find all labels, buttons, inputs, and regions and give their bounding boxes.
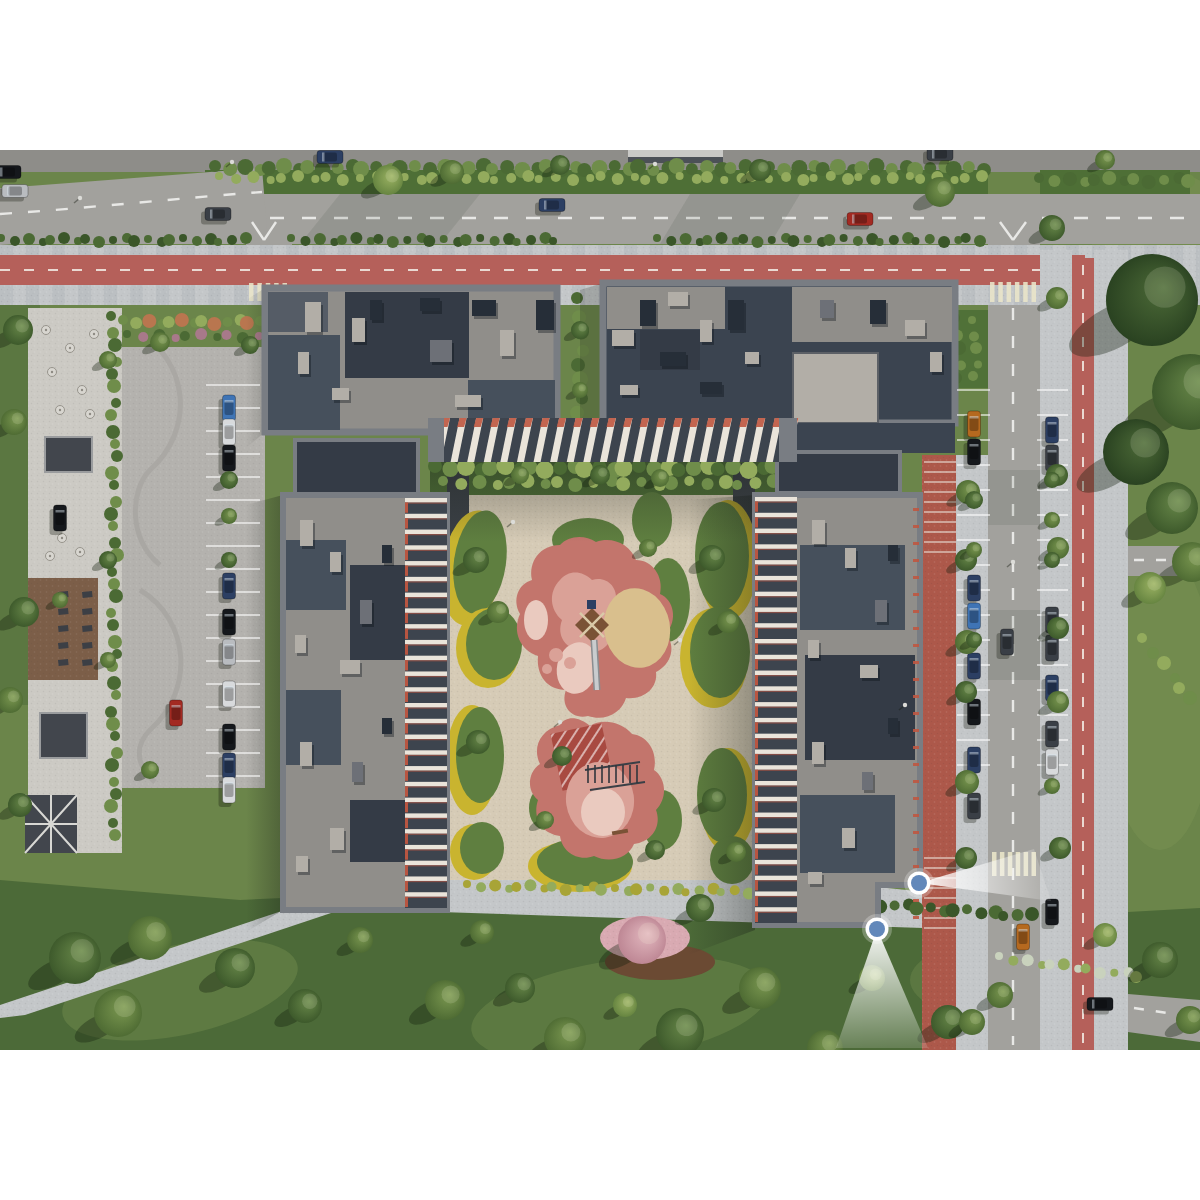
facade (428, 418, 798, 462)
bush (938, 236, 950, 248)
bush (490, 176, 498, 184)
bush (631, 173, 639, 181)
bush (506, 173, 516, 183)
bush (1008, 956, 1018, 966)
bush (653, 234, 661, 242)
bush (717, 888, 725, 896)
bush (960, 173, 970, 183)
bush (110, 496, 122, 508)
bush (701, 171, 713, 183)
bush (1183, 691, 1197, 705)
bush (478, 171, 490, 183)
street-lamp (230, 160, 234, 164)
bush (490, 236, 500, 246)
bush (163, 234, 175, 246)
rooftop-unit (332, 388, 349, 400)
car-white (219, 777, 236, 807)
bush (586, 174, 594, 182)
bush (58, 232, 70, 244)
rooftop-unit (888, 718, 898, 734)
bush (180, 331, 190, 341)
rooftop-unit (430, 340, 452, 362)
bush (276, 173, 286, 183)
bush (711, 462, 725, 476)
umbrella-canopy (25, 795, 77, 853)
bush (684, 476, 694, 486)
bush (797, 174, 809, 186)
rooftop-unit (860, 665, 878, 678)
bush (804, 235, 812, 243)
rooftop-unit (455, 395, 481, 407)
deck-table (82, 642, 93, 649)
bush (995, 952, 1003, 960)
bush (45, 235, 55, 245)
bush (926, 902, 936, 912)
bush (489, 879, 501, 891)
rooftop-unit (700, 320, 712, 342)
car-dark (923, 148, 953, 165)
bush (109, 777, 119, 787)
bush (1081, 963, 1091, 973)
deck-table (58, 608, 69, 615)
bush (854, 173, 862, 181)
rooftop-unit (382, 545, 392, 563)
red-tick (913, 678, 919, 681)
bush (669, 158, 685, 174)
bush (118, 315, 128, 325)
red-tick (913, 746, 919, 749)
car-dark (1042, 721, 1059, 751)
bush (702, 235, 712, 245)
bush (292, 170, 304, 182)
bush (968, 316, 976, 324)
bush (868, 158, 884, 174)
bush (455, 478, 467, 490)
bush (640, 175, 650, 185)
bush (321, 172, 331, 182)
bush (1058, 958, 1070, 970)
bush (227, 235, 237, 245)
bush (222, 330, 232, 340)
deck-table (82, 591, 93, 598)
bush (142, 314, 156, 328)
bush (1048, 175, 1060, 187)
bush (276, 158, 292, 174)
bush (686, 460, 702, 476)
car-orange (964, 411, 981, 441)
bush (267, 176, 275, 184)
rooftop-unit (382, 718, 392, 734)
bush (214, 238, 222, 246)
bush (240, 232, 252, 244)
cafe-table (66, 344, 75, 353)
bush (630, 159, 646, 175)
crosswalk-stripe (998, 282, 1003, 302)
bush (740, 461, 758, 479)
red-tick (913, 814, 919, 817)
bush (109, 829, 121, 841)
car-red (166, 700, 183, 730)
bush (823, 234, 835, 246)
bush (23, 233, 35, 245)
bush (909, 901, 923, 915)
bush (106, 368, 118, 380)
rooftop-unit (700, 382, 722, 394)
red-tick (913, 508, 919, 511)
bush (567, 174, 579, 186)
car-navy (219, 573, 236, 603)
bush (1044, 960, 1054, 970)
deck-table (82, 608, 93, 615)
cafe-table (46, 552, 55, 561)
bush (195, 315, 207, 327)
bush (911, 237, 919, 245)
bush (192, 236, 202, 246)
rooftop-unit (845, 548, 856, 568)
car-black (219, 609, 236, 639)
cafe-table (56, 406, 65, 415)
bush (1094, 967, 1106, 979)
rooftop-unit (305, 302, 321, 332)
cafe-table (86, 410, 95, 419)
bush (925, 234, 935, 244)
bush (810, 174, 818, 182)
bush (179, 234, 187, 242)
bush (409, 160, 421, 172)
car-red (843, 213, 873, 230)
bush (524, 879, 536, 891)
rooftop-unit (420, 298, 440, 311)
red-tick (913, 627, 919, 630)
bush (659, 886, 669, 896)
bush (686, 163, 698, 175)
bush (751, 236, 763, 248)
red-tick (913, 848, 919, 851)
rooftop-unit (842, 828, 855, 848)
bush (130, 317, 142, 329)
bush (549, 237, 557, 245)
car-dark (201, 208, 231, 225)
bush (109, 236, 117, 244)
street-lamp (78, 196, 82, 200)
bush (417, 175, 427, 185)
car-navy (964, 575, 981, 605)
bush (175, 313, 189, 327)
bush (646, 884, 654, 892)
street-lamp (903, 703, 907, 707)
rooftop-unit (875, 600, 887, 622)
rooftop-unit (808, 872, 822, 884)
bush (106, 311, 116, 321)
red-tick (913, 780, 919, 783)
bush (1173, 682, 1185, 694)
bush (1137, 633, 1147, 643)
bush (215, 172, 223, 180)
cafe-table (76, 548, 85, 557)
red-tick (913, 661, 919, 664)
bush (1022, 954, 1034, 966)
bush (630, 883, 642, 895)
car-navy (1042, 417, 1059, 447)
bush (80, 234, 90, 244)
bush (463, 880, 471, 888)
red-tick (913, 729, 919, 732)
bush (144, 235, 152, 243)
bush (108, 818, 118, 828)
rooftop-unit (812, 520, 825, 544)
bush (373, 234, 383, 244)
bush (110, 439, 120, 449)
bush (105, 758, 119, 772)
bush (337, 174, 349, 186)
bush (720, 176, 728, 184)
bush (104, 507, 118, 521)
rooftop-unit (812, 742, 824, 764)
bush (889, 235, 899, 245)
deck-table (58, 659, 69, 666)
red-tick (913, 865, 919, 868)
rooftop-unit (298, 352, 309, 374)
bush (915, 174, 925, 184)
rooftop-unit (808, 640, 819, 658)
crosswalk-stripe (1023, 282, 1027, 302)
bush (1170, 673, 1180, 683)
car-navy (964, 653, 981, 683)
bush (311, 175, 319, 183)
west-connector (295, 440, 418, 497)
bush (231, 174, 241, 184)
bush (535, 175, 543, 183)
bush (702, 478, 714, 490)
bush (826, 171, 836, 181)
car-black (219, 724, 236, 754)
car-dark (964, 793, 981, 823)
bush (609, 160, 621, 172)
red-tick (913, 644, 919, 647)
bush (423, 235, 435, 247)
rooftop-unit (330, 552, 341, 572)
bush (1110, 969, 1118, 977)
bush (522, 170, 534, 182)
deck-table (82, 625, 93, 632)
bush (612, 173, 624, 185)
bush (247, 171, 259, 183)
bush (350, 232, 362, 244)
red-tick (913, 916, 919, 919)
rooftop-unit (296, 856, 308, 872)
bush (998, 911, 1008, 921)
aerial-masterplan-render (0, 0, 1200, 1200)
bush (106, 425, 120, 439)
red-tick (913, 525, 919, 528)
bush (106, 717, 120, 731)
bush (195, 328, 207, 340)
red-tick (913, 559, 919, 562)
rooftop-unit (330, 828, 344, 850)
bush (547, 882, 557, 892)
bush (356, 174, 364, 182)
rooftop-unit (745, 352, 759, 364)
car-navy (535, 199, 565, 216)
car-black (219, 445, 236, 475)
rooftop-unit (536, 300, 554, 330)
bush (209, 160, 221, 172)
bush (107, 619, 119, 631)
bush (111, 398, 121, 408)
bush (511, 882, 521, 892)
bush (108, 521, 118, 531)
bush (111, 450, 123, 462)
bush (961, 233, 971, 243)
bush (551, 476, 563, 488)
red-tick (913, 712, 919, 715)
red-tick (913, 763, 919, 766)
bush (513, 238, 521, 246)
bush (213, 333, 221, 341)
bush (656, 172, 668, 184)
rooftop-unit (340, 660, 360, 674)
rooftop-unit (870, 300, 886, 324)
bush (1025, 907, 1039, 921)
bush (1102, 171, 1116, 185)
bush (108, 338, 122, 352)
bush (403, 236, 411, 244)
bush (105, 706, 117, 718)
bush (738, 234, 748, 244)
crosswalk-stripe (990, 282, 995, 302)
rooftop-unit (612, 330, 634, 346)
bush (107, 327, 119, 339)
bush (314, 233, 326, 245)
bush (716, 232, 728, 244)
courtyard (430, 455, 795, 955)
bush (163, 316, 175, 328)
bush (781, 172, 791, 182)
bush (172, 334, 180, 342)
bush (300, 236, 310, 246)
bush (962, 904, 972, 914)
offsite-building-stub (628, 150, 723, 158)
car-silver (219, 639, 236, 669)
bush (526, 235, 536, 245)
bush (1088, 174, 1100, 186)
bush (262, 161, 276, 175)
rooftop-unit (500, 330, 514, 356)
rooftop-unit (862, 772, 873, 790)
cafe-table (90, 330, 99, 339)
car-blue (964, 603, 981, 633)
car-black (964, 439, 981, 469)
bush (719, 475, 733, 489)
bush (671, 463, 685, 477)
car-white (219, 419, 236, 449)
cafe-table (48, 368, 57, 377)
car-black (964, 699, 981, 729)
bush (93, 236, 105, 248)
bush (680, 233, 692, 245)
bush (969, 332, 979, 342)
bush (493, 480, 503, 490)
bush (870, 175, 880, 185)
render-area (0, 148, 1200, 1081)
bush (666, 236, 676, 246)
bush (616, 477, 630, 491)
bush (108, 578, 120, 590)
rooftop-unit (352, 318, 365, 342)
car-black (50, 505, 67, 535)
bush (1181, 174, 1195, 188)
bush (1157, 656, 1171, 670)
bush (724, 162, 736, 174)
bush (107, 676, 121, 690)
screenshot-stage (0, 0, 1200, 1200)
bush (138, 332, 148, 342)
bush (337, 235, 347, 245)
bush (1063, 172, 1077, 186)
bush (109, 537, 121, 549)
bush (473, 475, 487, 489)
bush (692, 174, 702, 184)
bush (123, 330, 131, 338)
car-navy (313, 151, 343, 168)
bush (568, 478, 582, 492)
bush (1147, 647, 1159, 659)
facade (755, 497, 797, 923)
bush (791, 160, 807, 176)
bush (946, 903, 960, 917)
cafe-table (42, 326, 51, 335)
bush (596, 171, 606, 181)
bush (287, 234, 295, 242)
marker-dot (911, 875, 927, 891)
deck-table (58, 625, 69, 632)
rooftop-unit (360, 600, 372, 624)
street-lamp (678, 638, 682, 642)
bush (842, 173, 854, 185)
bush (1034, 173, 1044, 183)
bush (553, 461, 567, 475)
rooftop-unit (370, 300, 382, 320)
red-tick (913, 610, 919, 613)
bush (387, 236, 399, 248)
bush (840, 234, 848, 242)
car-black (1042, 899, 1059, 929)
bush (854, 161, 868, 175)
red-tick (913, 899, 919, 902)
rooftop-unit (472, 300, 496, 316)
bush (968, 371, 978, 381)
crosswalk-stripe (1015, 282, 1020, 302)
rooftop-unit (668, 292, 688, 306)
marker-dot (869, 921, 885, 937)
bush (1127, 173, 1139, 185)
bush (500, 160, 514, 174)
deck-table (58, 642, 69, 649)
bush (111, 747, 123, 759)
street-lamp (558, 720, 562, 724)
bush (876, 238, 884, 246)
crosswalk-stripe (1032, 282, 1037, 302)
bush (128, 235, 140, 247)
facade (405, 498, 447, 908)
street-lamp (1011, 560, 1015, 564)
bush (1142, 175, 1156, 189)
red-tick (913, 831, 919, 834)
bush (975, 907, 987, 919)
car-dark (997, 629, 1014, 659)
bush (10, 236, 20, 246)
bush (974, 235, 986, 247)
